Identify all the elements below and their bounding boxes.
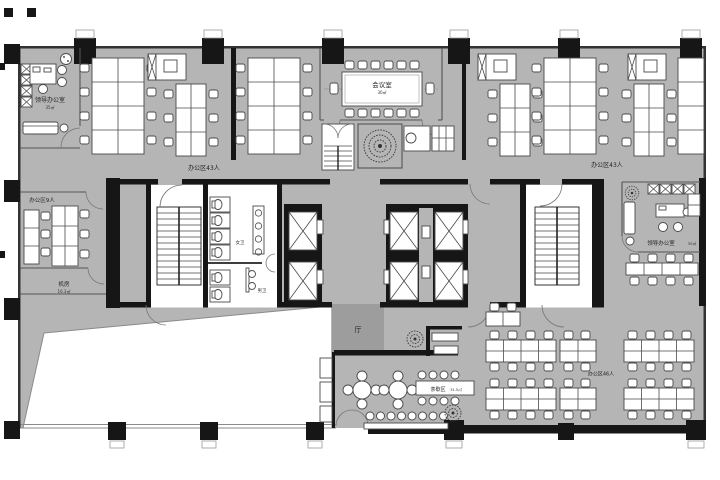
tea-break-label: 茶歇区 (430, 386, 445, 393)
meeting-room-label: 会议室 (372, 80, 392, 89)
core-elevator-bank-right (384, 204, 468, 306)
women-restroom-label: 女卫 (236, 239, 245, 246)
floor-plan: 领导办公室 35㎡ 办公区43人 会议室 30㎡ (0, 0, 720, 480)
men-restroom-label: 男卫 (258, 288, 267, 294)
room-area: 35㎡ (45, 104, 54, 110)
machine-room-area: 16.3㎡ (58, 288, 71, 294)
meeting-room-area: 30㎡ (377, 89, 386, 95)
leader-office-right-label: 领导办公室 (647, 239, 675, 247)
leader-office-right-area: 35㎡ (688, 241, 697, 246)
core-restrooms: 女卫 男卫 (208, 185, 277, 308)
floor-plan-canvas: 领导办公室 35㎡ 办公区43人 会议室 30㎡ (0, 0, 720, 480)
office-area-43-right-label: 办公区43人 (591, 161, 623, 169)
tea-break-area-size: 31.5㎡ (450, 387, 462, 392)
office-area-46-label: 办公区46人 (588, 371, 614, 378)
room-label: 领导办公室 (35, 96, 65, 104)
core-stair-1 (151, 185, 203, 308)
machine-room-label: 机房 (58, 280, 70, 288)
office-9-label: 办公区9人 (29, 196, 55, 204)
hall-label: 厅 (355, 326, 362, 334)
office-area-43-left-label: 办公区43人 (188, 164, 220, 172)
core-elevator-bank-left (284, 204, 323, 306)
core-stair-2 (526, 184, 592, 327)
